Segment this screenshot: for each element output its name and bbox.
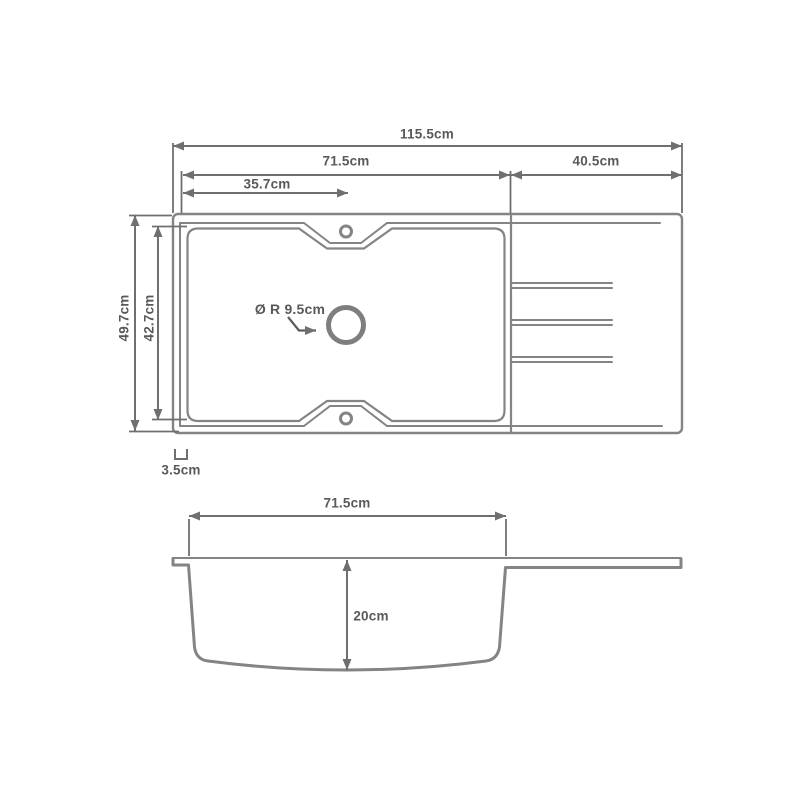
tap-hole-top bbox=[341, 226, 352, 237]
drawing-linework bbox=[0, 0, 800, 800]
dim-label-corner-radius: 3.5cm bbox=[161, 463, 200, 477]
side-view-outline bbox=[173, 558, 681, 670]
dim-label-side-bowl-height: 20cm bbox=[353, 609, 388, 623]
side-view-dimensions bbox=[189, 516, 506, 670]
dim-label-overall-depth: 49.7cm bbox=[117, 295, 131, 342]
dim-label-overall-width: 115.5cm bbox=[400, 127, 454, 141]
dim-label-bowl-center-offset: 35.7cm bbox=[244, 177, 291, 191]
tap-hole-bottom bbox=[341, 413, 352, 424]
sink-technical-drawing: 115.5cm 71.5cm 40.5cm 35.7cm 49.7cm 42.7… bbox=[0, 0, 800, 800]
dim-label-bowl-depth: 42.7cm bbox=[142, 295, 156, 342]
drain-hole-circle bbox=[329, 308, 364, 343]
drainer-grooves bbox=[512, 283, 612, 362]
drain-annotation-arrow bbox=[288, 317, 316, 331]
dim-label-bowl-section-width: 71.5cm bbox=[323, 154, 370, 168]
dim-label-drainer-width: 40.5cm bbox=[573, 154, 620, 168]
corner-radius-icon bbox=[175, 449, 187, 459]
dim-label-drain-hole: Ø R 9.5cm bbox=[255, 302, 325, 316]
top-view-outline bbox=[173, 214, 682, 433]
dim-label-side-bowl-width: 71.5cm bbox=[324, 496, 371, 510]
